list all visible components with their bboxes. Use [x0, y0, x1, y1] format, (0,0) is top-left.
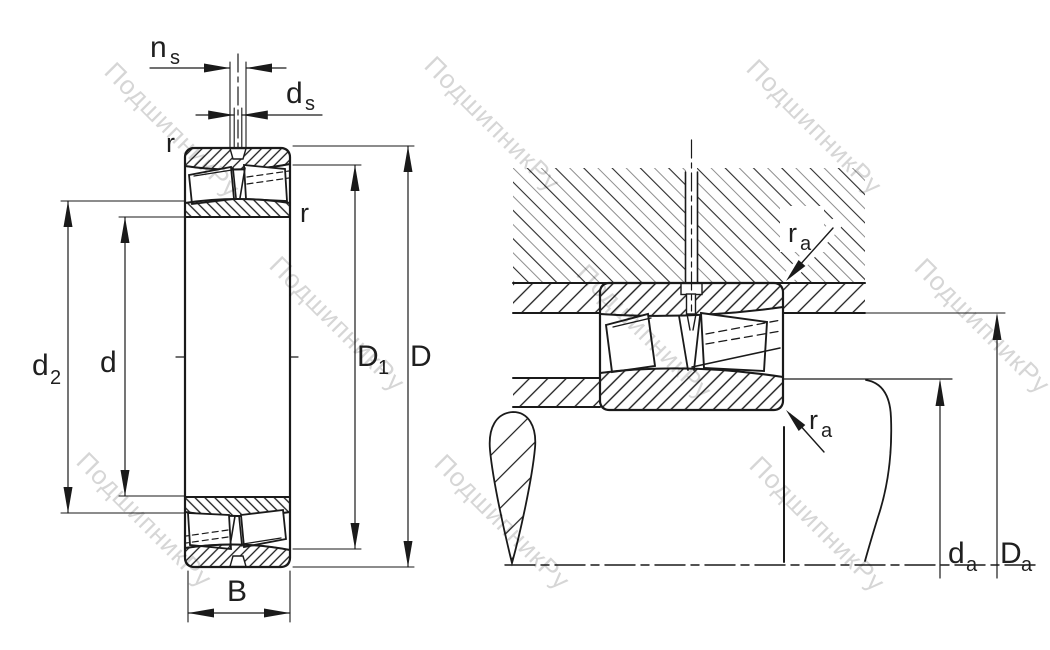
- housing-shoulder-left: [513, 284, 600, 313]
- shaft-section-teardrop: [490, 412, 536, 563]
- shaft-shoulder-profile: [865, 380, 891, 561]
- dimension-lines-right-view: [783, 313, 1005, 578]
- bearing-dimension-drawing-page: n s d s r r d 2 d D 1 D B: [0, 0, 1050, 650]
- label-hole-diameter-sub: s: [305, 93, 315, 115]
- lubrication-groove-bottom: [230, 556, 246, 567]
- label-recess-diameter: d: [32, 349, 49, 382]
- label-bore-diameter: d: [100, 346, 117, 379]
- lubrication-groove-top: [230, 149, 246, 160]
- label-groove-width-sub: s: [170, 47, 180, 69]
- label-chamfer-side: r: [300, 198, 309, 228]
- shaft-shoulder-left: [513, 378, 600, 407]
- label-hole-diameter: d: [286, 77, 303, 110]
- label-groove-width: n: [150, 31, 167, 64]
- label-housing-abutment-diameter-sub: a: [1021, 554, 1033, 576]
- label-width: B: [227, 575, 247, 608]
- technical-drawing-canvas: n s d s r r d 2 d D 1 D B: [0, 0, 1050, 650]
- label-outside-diameter: D: [410, 340, 432, 373]
- label-chamfer-top: r: [166, 128, 175, 158]
- label-shaft-fillet-sub: a: [821, 420, 833, 442]
- label-housing-fillet-sub: a: [800, 233, 812, 255]
- label-outer-shoulder-diameter: D: [357, 340, 379, 373]
- fillet-leader-bottom: [786, 410, 824, 452]
- label-shaft-fillet: r: [809, 405, 818, 435]
- left-bearing-cross-section: n s d s r r d 2 d D 1 D B: [32, 31, 432, 622]
- mounted-inner-ring-section: [600, 368, 783, 410]
- mounted-bearing-cross-section: r a r a d a D a: [490, 140, 1040, 578]
- label-recess-diameter-sub: 2: [50, 367, 61, 389]
- label-outer-shoulder-diameter-sub: 1: [378, 357, 389, 379]
- label-shaft-abutment-diameter-sub: a: [966, 554, 978, 576]
- label-shaft-abutment-diameter: d: [948, 537, 965, 570]
- label-housing-fillet: r: [788, 218, 797, 248]
- label-housing-abutment-diameter: D: [1000, 537, 1022, 570]
- housing-shoulder-right: [783, 284, 865, 313]
